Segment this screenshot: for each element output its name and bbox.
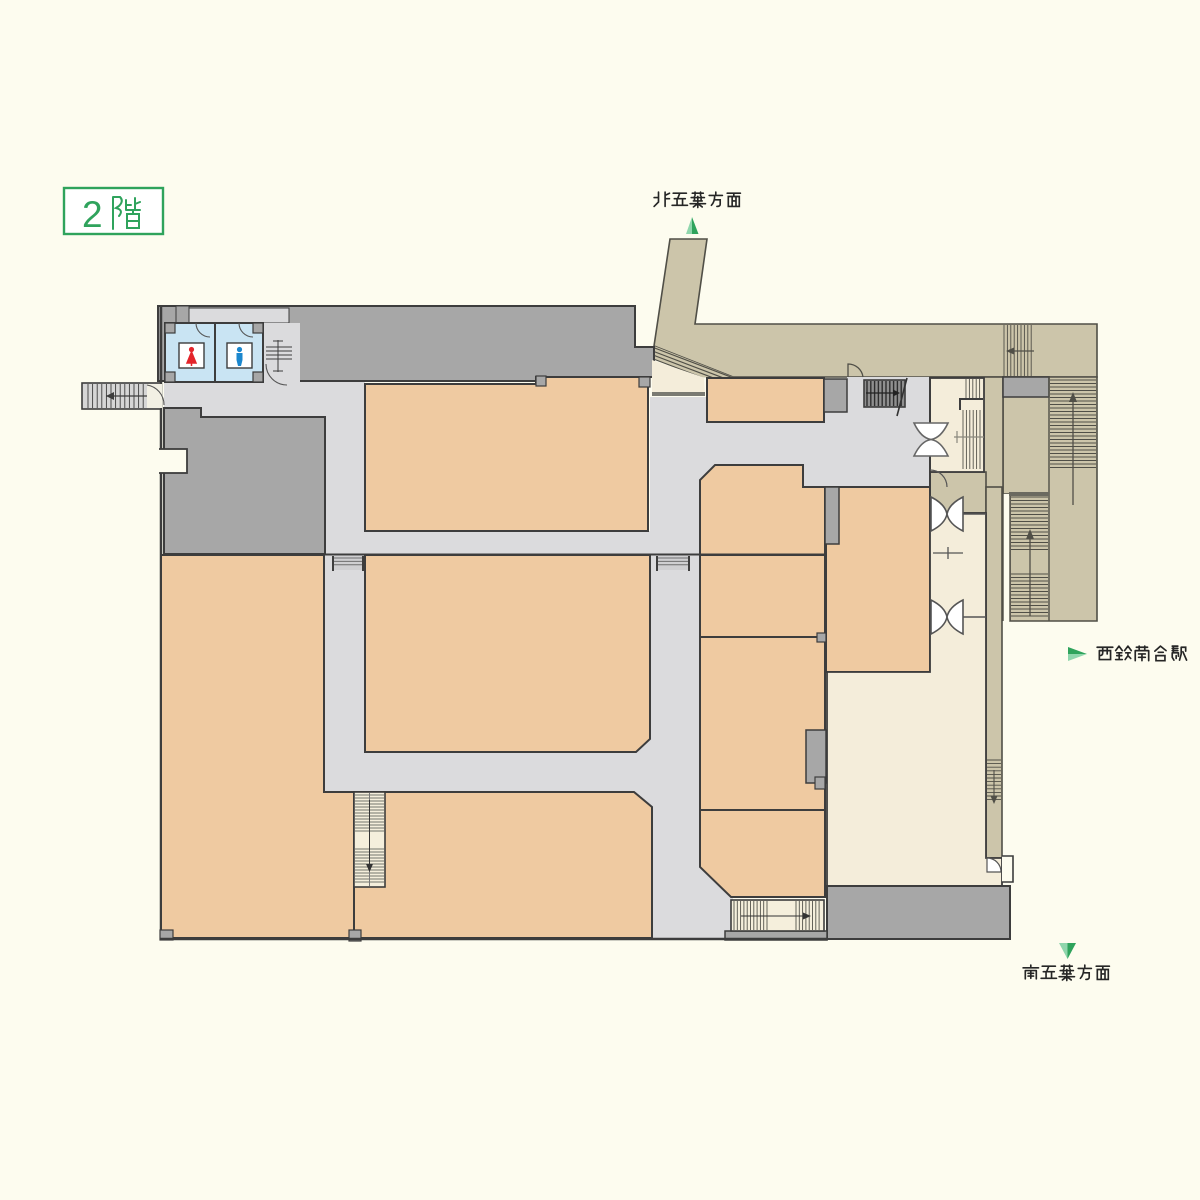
- svg-text:2: 2: [82, 194, 103, 235]
